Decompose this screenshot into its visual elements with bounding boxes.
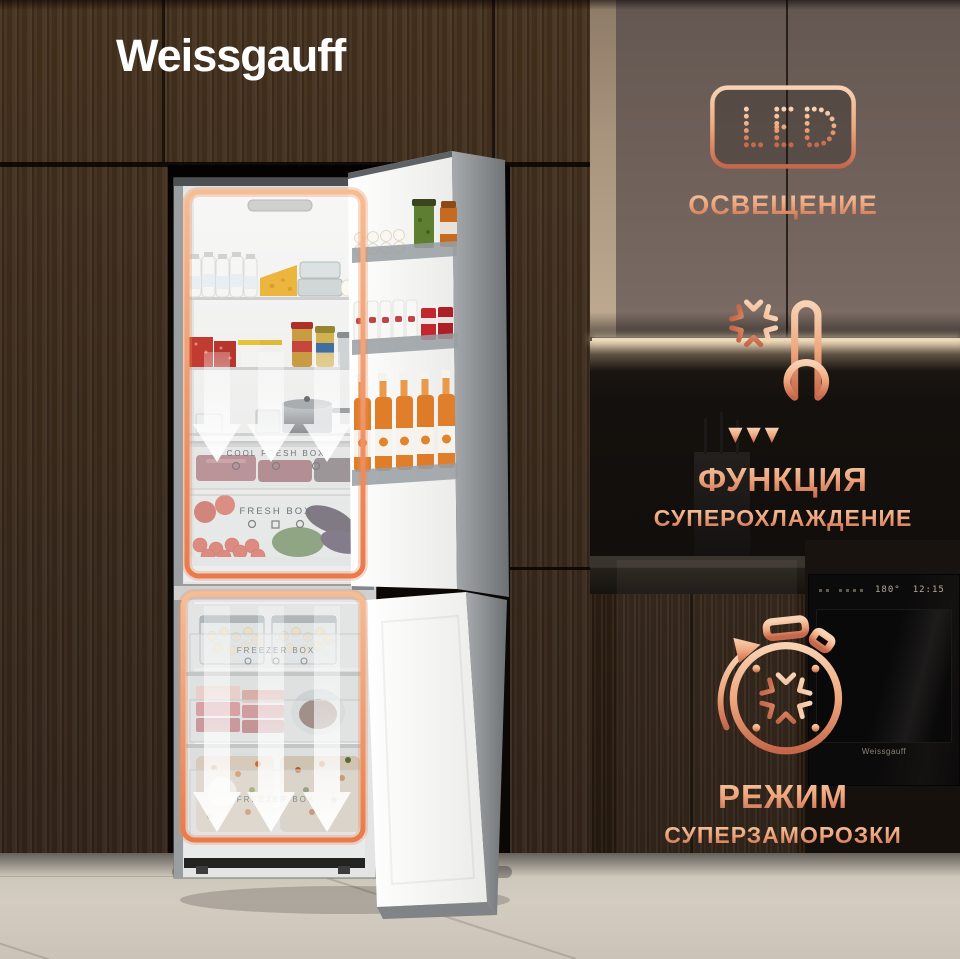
- oven-temperature: 180°: [875, 585, 901, 595]
- fridge-door-edge: [452, 151, 509, 597]
- open-refrigerator: COOL FRESH BOX FRESH BOX: [150, 140, 520, 930]
- cold-air-arrows-icon: [728, 358, 779, 443]
- interior-light: [248, 200, 312, 211]
- refresh-arrow-icon: [721, 638, 761, 728]
- oven-icon: [826, 589, 829, 592]
- snowflake-thermometer-icon: [727, 295, 839, 447]
- oven-icon: [819, 589, 822, 592]
- feature-title: ОСВЕЩЕНИЕ: [688, 190, 877, 221]
- oven-icon: [860, 589, 863, 592]
- oven-icon: [846, 589, 849, 592]
- fresh-box-drawer: FRESH BOX: [188, 495, 366, 566]
- freezer-door-open: [366, 592, 507, 919]
- feature-super-freeze: РЕЖИМ СУПЕРЗАМОРОЗКИ: [633, 612, 933, 849]
- feature-subtitle: СУПЕРОХЛАЖДЕНИЕ: [654, 505, 913, 532]
- thermometer-icon: [787, 304, 826, 398]
- cabinet-seam: [492, 0, 495, 163]
- milk-bottles: [188, 252, 257, 297]
- feature-title: ФУНКЦИЯ: [698, 461, 868, 499]
- oven-control-panel: 180° 12:15: [809, 575, 959, 605]
- snowflake-icon: [728, 298, 779, 349]
- fridge-foot: [196, 866, 208, 874]
- feature-super-cooling: ФУНКЦИЯ СУПЕРОХЛАЖДЕНИЕ: [633, 295, 933, 532]
- feature-led-lighting: ОСВЕЩЕНИЕ: [633, 80, 933, 221]
- marketing-banner: 180° 12:15 Weissgauff: [0, 0, 960, 959]
- top-vignette: [0, 0, 960, 10]
- snowflake-icon: [758, 671, 813, 726]
- timer-snowflake-icon: [710, 612, 856, 764]
- food-containers: [298, 262, 342, 296]
- glass-shelf: [186, 297, 364, 300]
- brand-logo: Weissgauff: [116, 30, 345, 82]
- oven-icon: [853, 589, 856, 592]
- led-badge-icon: [707, 80, 859, 174]
- fridge-door-open: [348, 151, 509, 597]
- fridge-foot: [338, 866, 350, 874]
- cabinet-side-panel: [590, 0, 616, 337]
- oven-time: 12:15: [913, 585, 945, 595]
- airflow-arrows-fresh: [193, 352, 351, 462]
- fresh-box-label: FRESH BOX: [240, 506, 313, 517]
- feature-title: РЕЖИМ: [718, 778, 848, 816]
- airflow-arrows-freezer: [193, 606, 351, 832]
- oven-icon: [839, 589, 842, 592]
- feature-subtitle: СУПЕРЗАМОРОЗКИ: [664, 822, 902, 849]
